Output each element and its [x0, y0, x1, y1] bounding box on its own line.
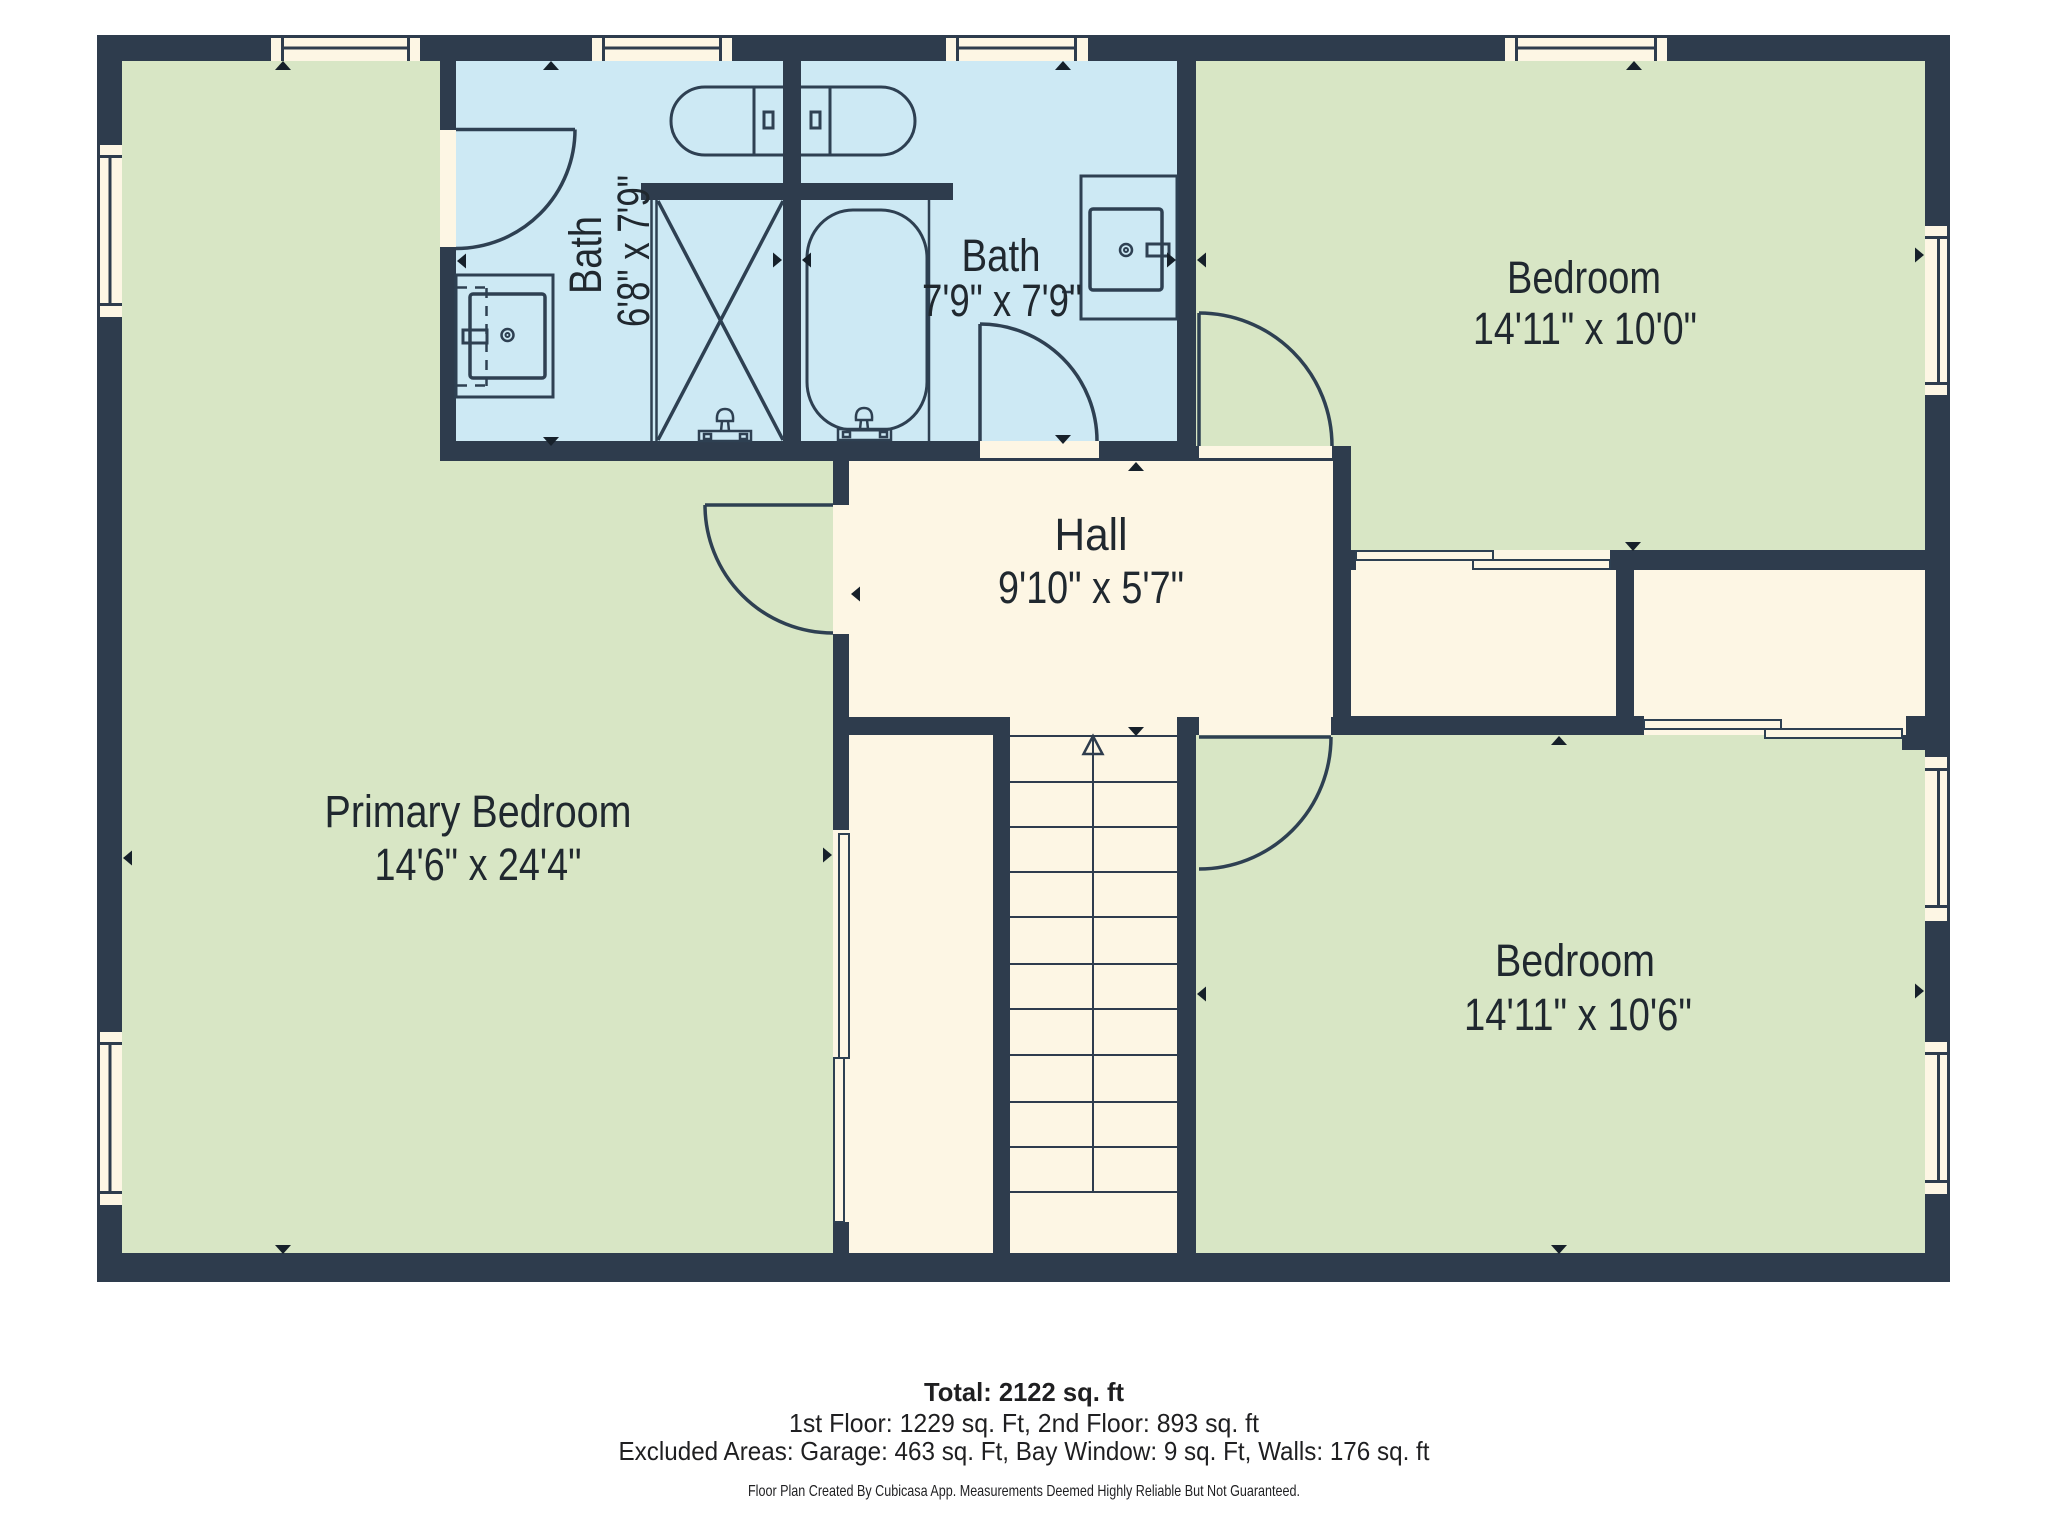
svg-text:Bath: Bath [962, 230, 1041, 281]
svg-text:Floor Plan Created By Cubicasa: Floor Plan Created By Cubicasa App. Meas… [748, 1483, 1300, 1500]
svg-text:Bedroom: Bedroom [1495, 935, 1655, 986]
svg-text:14'11" x 10'0": 14'11" x 10'0" [1473, 303, 1697, 354]
svg-text:Total: 2122 sq. ft: Total: 2122 sq. ft [924, 1377, 1124, 1407]
svg-text:Bath: Bath [560, 216, 611, 294]
svg-text:Bedroom: Bedroom [1507, 252, 1661, 303]
svg-text:1st Floor: 1229 sq. Ft, 2nd Fl: 1st Floor: 1229 sq. Ft, 2nd Floor: 893 s… [789, 1408, 1260, 1438]
svg-text:6'8" x 7'9": 6'8" x 7'9" [608, 175, 659, 327]
svg-text:Hall: Hall [1055, 509, 1128, 560]
svg-text:9'10" x 5'7": 9'10" x 5'7" [998, 562, 1184, 613]
svg-text:14'11" x 10'6": 14'11" x 10'6" [1464, 989, 1692, 1040]
svg-text:Excluded Areas: Garage: 463 sq: Excluded Areas: Garage: 463 sq. Ft, Bay … [619, 1436, 1431, 1466]
svg-text:Primary Bedroom: Primary Bedroom [325, 786, 632, 837]
svg-text:7'9" x 7'9": 7'9" x 7'9" [922, 275, 1082, 326]
svg-text:14'6" x 24'4": 14'6" x 24'4" [375, 839, 582, 890]
